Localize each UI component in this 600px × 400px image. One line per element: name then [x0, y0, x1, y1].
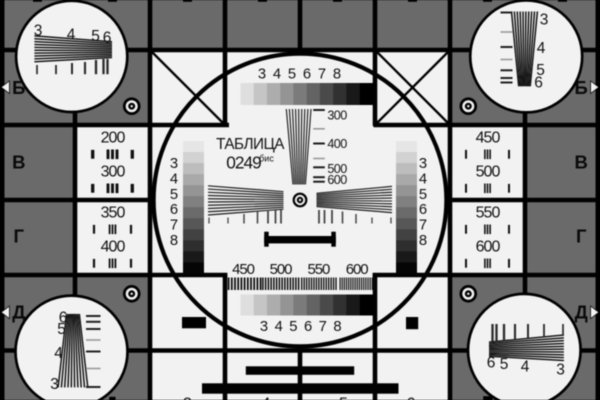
svg-text:В: В	[575, 152, 588, 173]
svg-text:8: 8	[170, 233, 178, 249]
svg-text:400: 400	[101, 238, 126, 255]
svg-text:4: 4	[273, 67, 281, 83]
svg-text:450: 450	[476, 129, 501, 146]
svg-text:500: 500	[476, 163, 501, 180]
svg-text:6: 6	[419, 202, 427, 218]
svg-text:4: 4	[170, 171, 178, 187]
svg-text:5: 5	[339, 396, 348, 400]
svg-text:4: 4	[537, 40, 546, 57]
svg-text:600: 600	[327, 173, 347, 187]
svg-text:300: 300	[327, 109, 347, 123]
svg-text:3: 3	[50, 376, 59, 393]
svg-text:8: 8	[419, 233, 427, 249]
svg-text:В: В	[12, 152, 25, 173]
svg-text:300: 300	[101, 163, 126, 180]
svg-text:400: 400	[327, 137, 347, 151]
svg-text:6: 6	[170, 202, 178, 218]
svg-text:бис: бис	[259, 154, 274, 164]
svg-text:3: 3	[183, 396, 192, 400]
svg-text:5: 5	[500, 356, 509, 373]
svg-text:Б: Б	[12, 77, 25, 98]
svg-text:3: 3	[258, 67, 266, 83]
svg-text:0249: 0249	[226, 153, 261, 173]
svg-text:5: 5	[57, 321, 66, 338]
svg-text:4: 4	[521, 359, 530, 376]
svg-text:Б: Б	[575, 77, 588, 98]
svg-text:6: 6	[303, 67, 311, 83]
svg-text:6: 6	[103, 30, 112, 47]
svg-text:7: 7	[318, 67, 326, 83]
svg-text:3: 3	[540, 12, 549, 29]
svg-text:Г: Г	[576, 226, 587, 247]
svg-text:6: 6	[304, 319, 312, 335]
svg-text:4: 4	[262, 396, 271, 400]
svg-text:Д: Д	[12, 302, 25, 323]
svg-text:7: 7	[170, 218, 178, 234]
svg-text:350: 350	[101, 204, 126, 221]
svg-text:550: 550	[308, 261, 330, 278]
svg-text:7: 7	[419, 218, 427, 234]
svg-text:3: 3	[556, 362, 565, 379]
svg-text:3: 3	[34, 23, 43, 40]
svg-text:ТАБЛИЦА: ТАБЛИЦА	[216, 136, 285, 153]
svg-text:7: 7	[319, 319, 327, 335]
svg-text:5: 5	[289, 319, 297, 335]
svg-text:200: 200	[101, 129, 126, 146]
svg-text:3: 3	[260, 319, 268, 335]
svg-text:450: 450	[232, 261, 254, 278]
svg-text:500: 500	[270, 261, 292, 278]
svg-text:4: 4	[275, 319, 283, 335]
svg-text:6: 6	[407, 396, 416, 400]
svg-text:600: 600	[346, 261, 368, 278]
svg-text:Г: Г	[14, 226, 25, 247]
svg-text:8: 8	[333, 319, 341, 335]
svg-text:3: 3	[419, 156, 427, 172]
svg-text:6: 6	[487, 355, 496, 372]
svg-text:550: 550	[476, 204, 501, 221]
svg-text:3: 3	[170, 156, 178, 172]
svg-text:6: 6	[534, 75, 543, 92]
svg-text:4: 4	[67, 27, 76, 44]
svg-text:600: 600	[476, 238, 501, 255]
svg-text:4: 4	[419, 171, 427, 187]
svg-text:5: 5	[288, 67, 296, 83]
svg-text:5: 5	[91, 28, 100, 45]
svg-text:5: 5	[170, 187, 178, 203]
svg-text:4: 4	[54, 345, 63, 362]
svg-text:8: 8	[333, 67, 341, 83]
svg-text:5: 5	[419, 187, 427, 203]
svg-text:Д: Д	[575, 302, 588, 323]
